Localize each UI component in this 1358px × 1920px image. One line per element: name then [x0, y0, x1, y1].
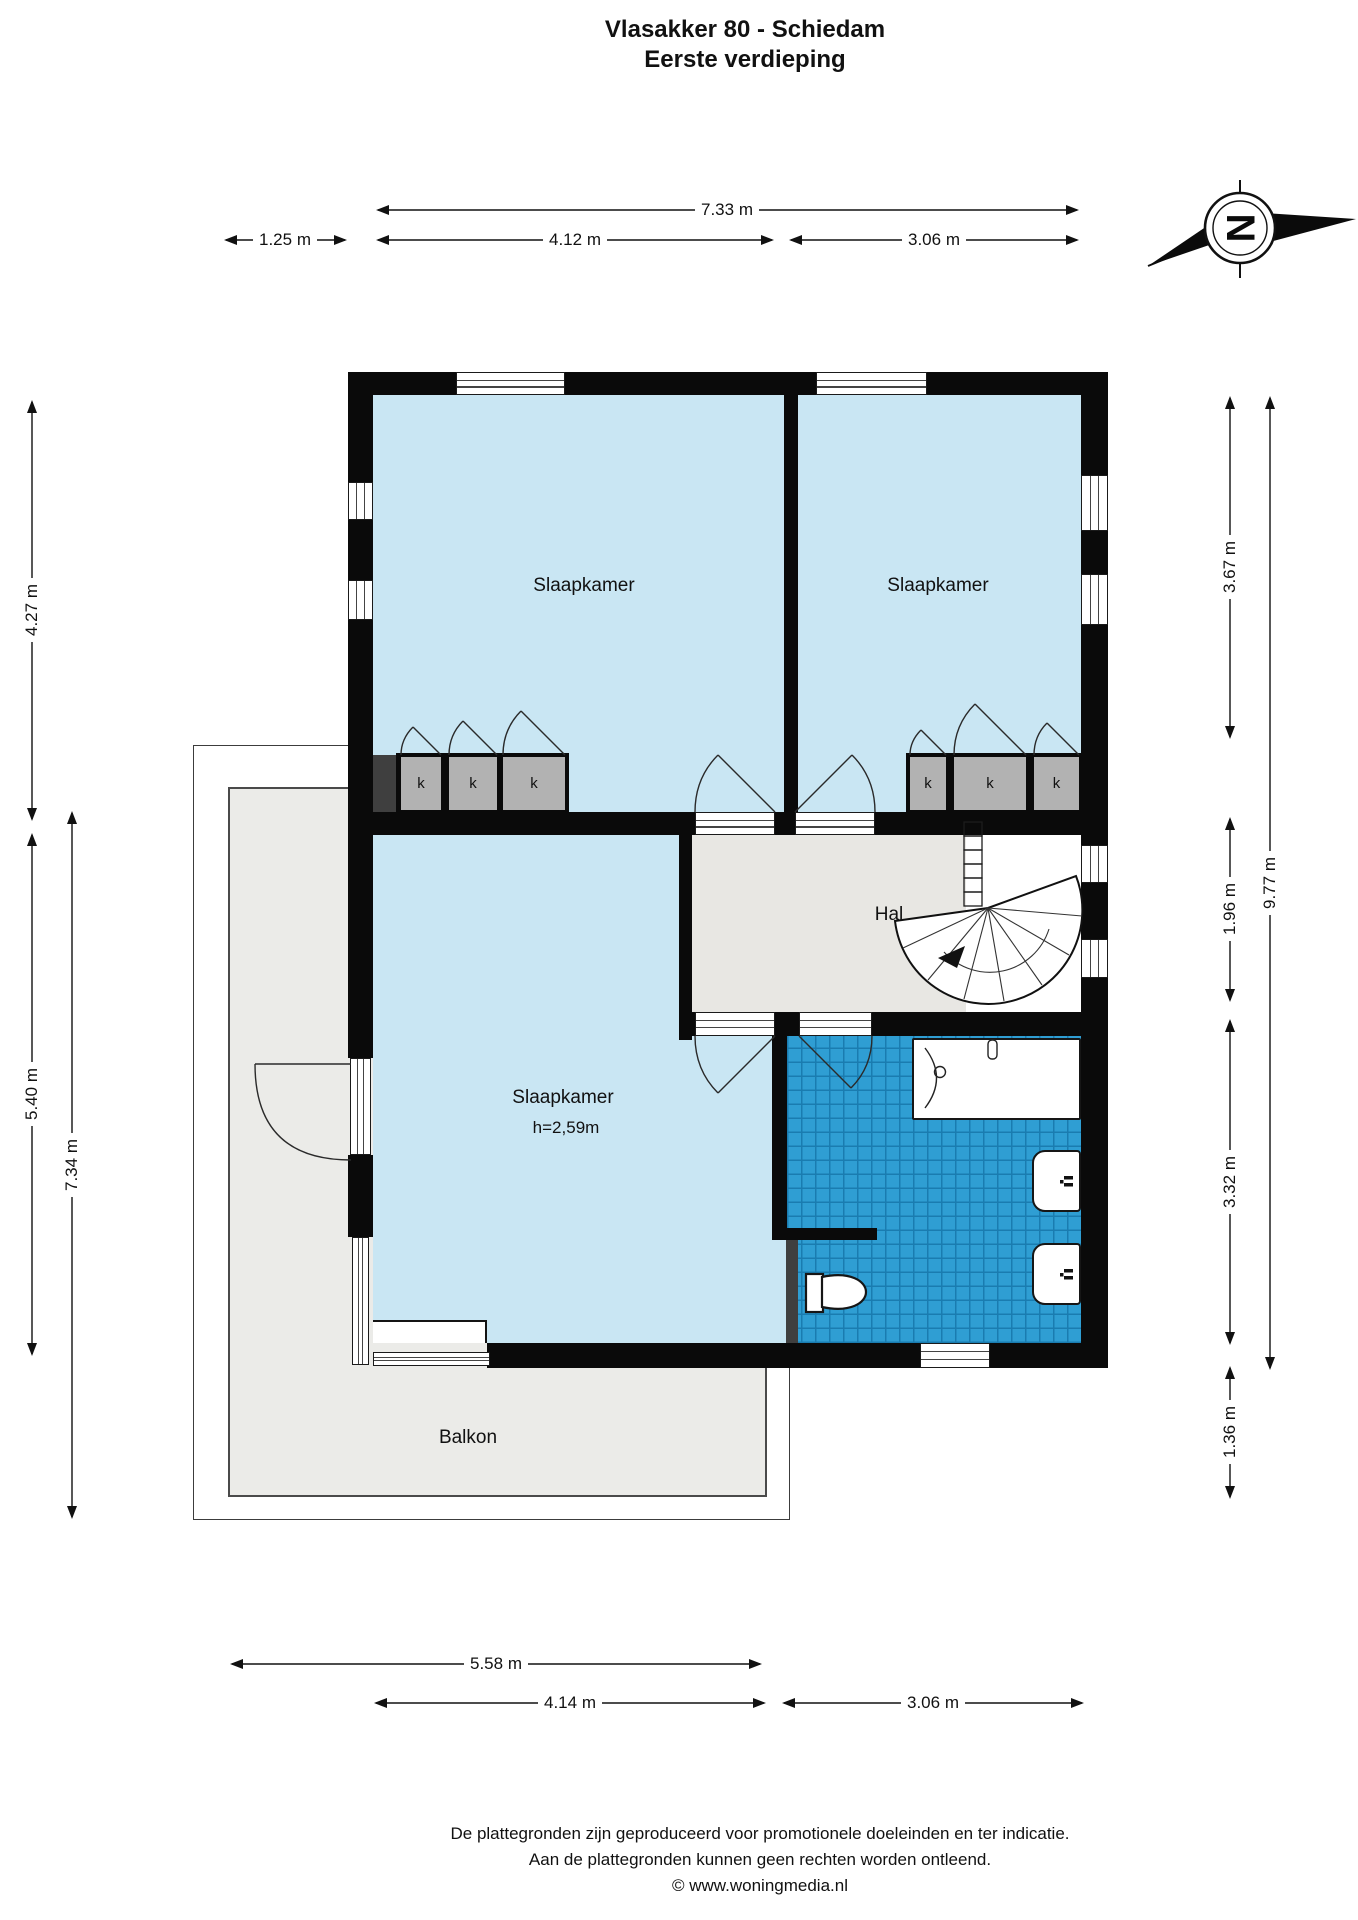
room-label-balcony: Balkon: [439, 1427, 497, 1449]
closet-end-cap: [373, 755, 396, 812]
wall-wc-half: [786, 1240, 798, 1343]
closet-k: k: [401, 757, 441, 810]
wall: [348, 1155, 373, 1237]
window-left-2: [348, 580, 373, 620]
dim-right-136: 1.36 m: [1220, 1400, 1240, 1464]
wall: [565, 372, 816, 395]
window-right-1: [1081, 475, 1108, 531]
closet-label: k: [530, 775, 538, 792]
wall: [679, 835, 692, 1040]
wall: [1081, 978, 1108, 1368]
compass-icon: N: [1148, 180, 1356, 278]
door-sill-bedroom-tl: [695, 812, 775, 835]
window-top-2: [816, 372, 927, 395]
wall: [348, 520, 373, 580]
page-subtitle: Eerste verdieping: [644, 46, 845, 74]
room-label-hall: Hal: [875, 904, 904, 926]
wall: [775, 1012, 799, 1036]
dim-top-733: 7.33 m: [695, 200, 759, 220]
dim-right-367: 3.67 m: [1220, 535, 1240, 599]
window-bottom-1: [920, 1343, 990, 1368]
dim-top-306: 3.06 m: [902, 230, 966, 250]
closet-label: k: [417, 775, 425, 792]
door-sill-bedroom-tr: [795, 812, 875, 835]
footer-copyright: © www.woningmedia.nl: [672, 1876, 848, 1896]
wall: [990, 1343, 1108, 1368]
dim-bottom-414: 4.14 m: [538, 1693, 602, 1713]
footer-disclaimer-2: Aan de plattegronden kunnen geen rechten…: [529, 1850, 991, 1870]
wall: [1081, 531, 1108, 574]
bathtub: [912, 1038, 1081, 1120]
closet-label: k: [986, 775, 994, 792]
dim-left-540: 5.40 m: [22, 1062, 42, 1126]
window-left-1: [348, 482, 373, 520]
wall: [875, 812, 1108, 835]
hall-floor: [692, 835, 966, 1012]
dim-top-125: 1.25 m: [253, 230, 317, 250]
closet-k: k: [449, 757, 497, 810]
door-sill-balcony: [350, 1058, 371, 1155]
closet-label: k: [1053, 775, 1061, 792]
closet-k: k: [503, 757, 565, 810]
bedroom-corner-notch: [373, 1320, 487, 1343]
room-label-bedroom-tl: Slaapkamer: [533, 575, 634, 597]
closet-label: k: [924, 775, 932, 792]
wall: [487, 1343, 920, 1368]
closet-k: k: [910, 757, 946, 810]
compass-north-letter: N: [1218, 214, 1262, 243]
stairs-floor: [966, 835, 1081, 1012]
bedroom-bottom-floor-ext: [679, 1036, 786, 1343]
door-sill-bathroom: [799, 1012, 872, 1036]
sink-2: [1032, 1243, 1081, 1305]
dim-top-412: 4.12 m: [543, 230, 607, 250]
closet-k: k: [954, 757, 1026, 810]
window-right-4: [1081, 939, 1108, 978]
dim-bottom-306: 3.06 m: [901, 1693, 965, 1713]
room-label-bedroom-b: Slaapkamer: [512, 1087, 613, 1109]
room-label-bedroom-tr: Slaapkamer: [887, 575, 988, 597]
door-sill-bedroom-b: [695, 1012, 775, 1036]
footer-disclaimer-1: De plattegronden zijn geproduceerd voor …: [450, 1824, 1069, 1844]
window-left-3: [352, 1237, 369, 1365]
wall: [348, 620, 373, 1058]
wall: [1081, 372, 1108, 475]
wall: [348, 372, 373, 482]
dim-left-427: 4.27 m: [22, 578, 42, 642]
wall-bedroom-divider: [784, 395, 798, 835]
wall: [1081, 883, 1108, 939]
window-top-1: [456, 372, 565, 395]
wall-wc-stub: [772, 1228, 877, 1240]
closet-label: k: [469, 775, 477, 792]
page-title: Vlasakker 80 - Schiedam: [605, 16, 885, 44]
dim-right-196: 1.96 m: [1220, 877, 1240, 941]
wall: [679, 1012, 695, 1036]
dim-right-977: 9.77 m: [1260, 851, 1280, 915]
closet-k: k: [1034, 757, 1079, 810]
wall-bathroom: [772, 1036, 787, 1228]
sink-1: [1032, 1150, 1081, 1212]
room-height-note: h=2,59m: [533, 1118, 600, 1138]
dim-right-332: 3.32 m: [1220, 1150, 1240, 1214]
dim-bottom-558: 5.58 m: [464, 1654, 528, 1674]
window-right-2: [1081, 574, 1108, 625]
window-right-3: [1081, 845, 1108, 883]
dim-left-734: 7.34 m: [62, 1133, 82, 1197]
wall: [373, 812, 695, 835]
floorplan-page: Vlasakker 80 - Schiedam Eerste verdiepin…: [0, 0, 1358, 1920]
window-bottom-2: [373, 1352, 490, 1366]
wall: [872, 1012, 1108, 1036]
